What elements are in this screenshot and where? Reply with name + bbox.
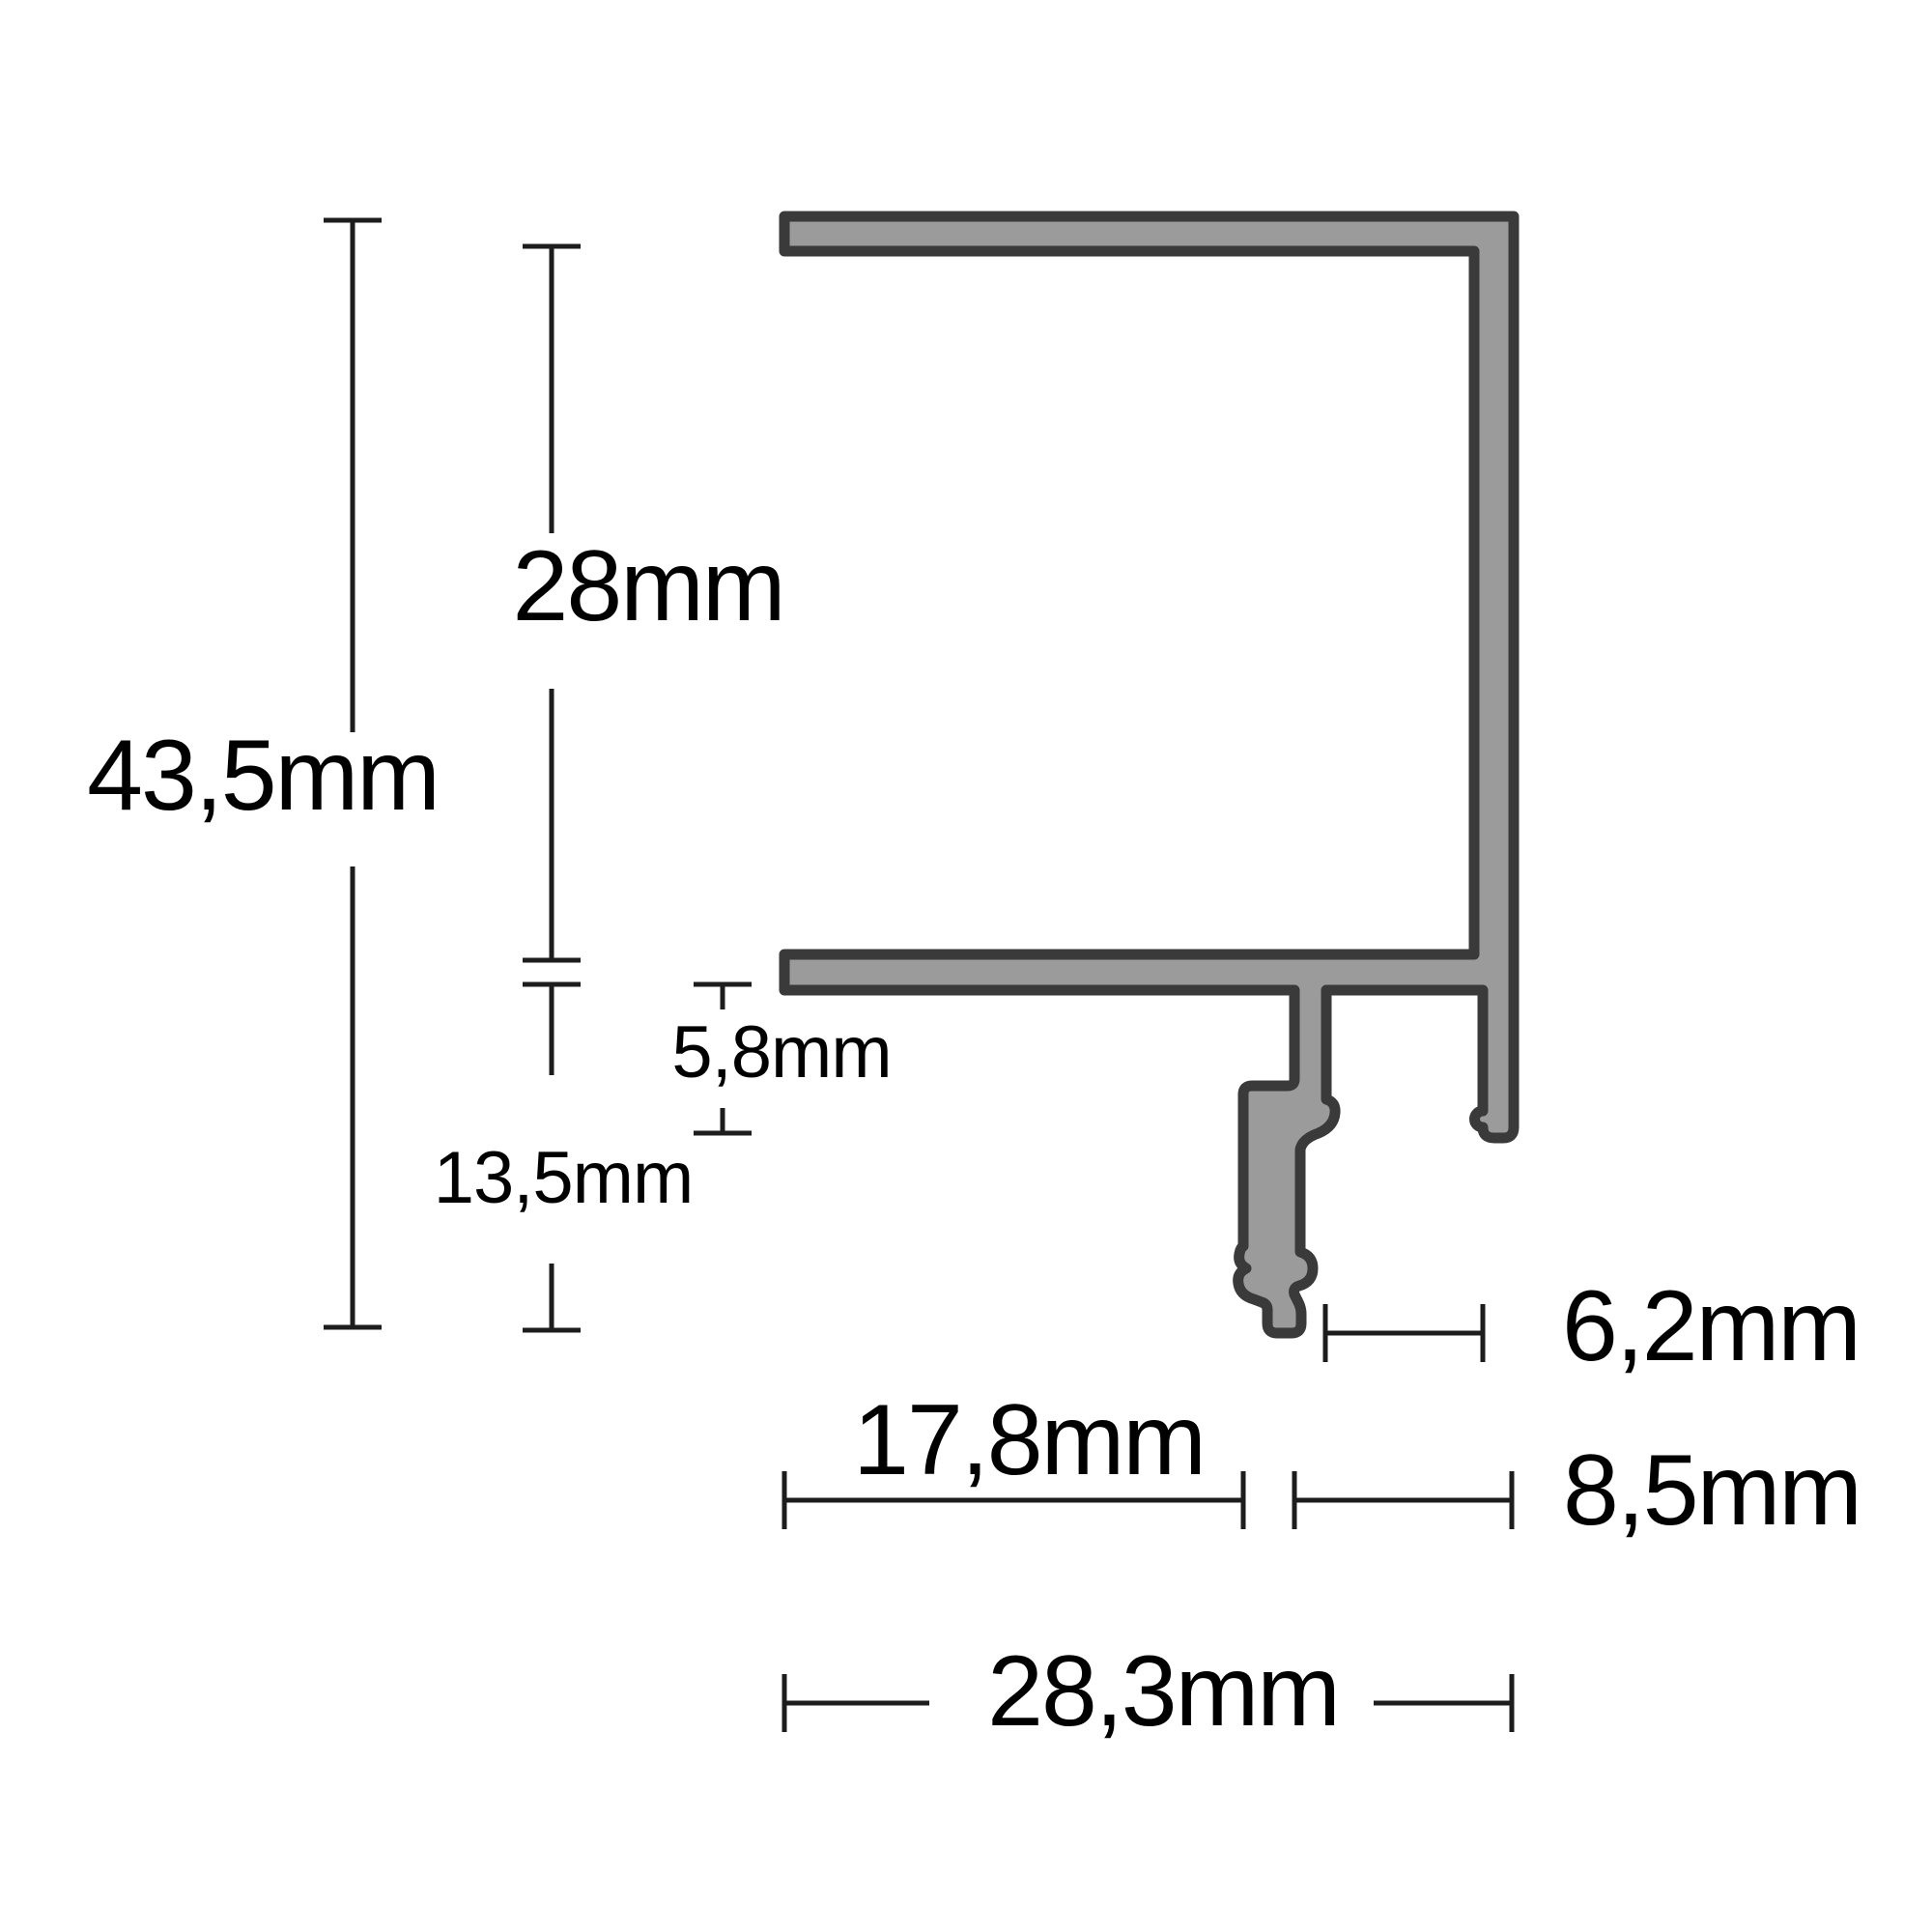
dim-label-overall-height: 43,5mm <box>87 720 439 832</box>
dim-label-lip-depth: 5,8mm <box>671 1011 891 1094</box>
dim-label-upper-height: 28mm <box>513 530 784 642</box>
dim-line-slot-width <box>1325 1304 1483 1362</box>
dim-label-slot-width: 6,2mm <box>1562 1270 1860 1382</box>
dim-label-hook-height: 13,5mm <box>434 1137 694 1219</box>
profile-dimension-drawing: 43,5mm 28mm 13,5mm 5,8mm 6,2mm 17,8mm 8,… <box>0 0 1932 1932</box>
dim-line-side-width <box>1294 1471 1512 1529</box>
dim-label-inner-width: 17,8mm <box>853 1384 1205 1496</box>
dim-label-overall-width: 28,3mm <box>987 1635 1339 1747</box>
dim-label-side-width: 8,5mm <box>1563 1435 1861 1547</box>
profile-shape <box>784 216 1514 1333</box>
drawing-canvas: 43,5mm 28mm 13,5mm 5,8mm 6,2mm 17,8mm 8,… <box>0 0 1932 1932</box>
